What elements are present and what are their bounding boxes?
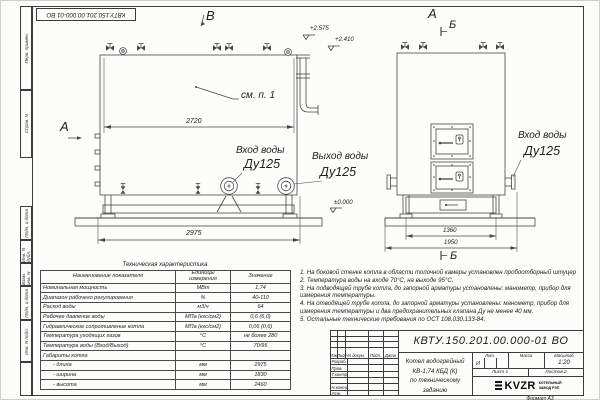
table-row: Диапазон рабочего регулирования%40-110 (41, 293, 291, 303)
col-izm: Изм. (330, 353, 337, 358)
table-row: - длинамм2975 (41, 361, 291, 371)
dim-2720-label: 2720 (186, 118, 202, 125)
product-name-line3: по техническому заданию (398, 376, 472, 395)
table-row: Рабочее давление водыМПа (кгс/см2)0,6 (6… (41, 312, 291, 322)
table-row: Температура уходящих газов°Сне более 280 (41, 331, 291, 341)
drawing-sheet: КВТУ.150.201.00.000-01 ВО Перв. примен. … (0, 0, 600, 400)
product-name: Котел водогрейный КВ-1,74 КБД (К) по тех… (398, 357, 472, 395)
margin-cell-perv-primen: Перв. примен. (20, 6, 32, 90)
logo-subtitle: КОТЕЛЬНЫЙ ЗАВОД РЭП (539, 381, 562, 390)
format-label: Формат А3 (500, 396, 580, 400)
mass-label: Масса (508, 353, 544, 358)
logo-text: KVZR (505, 380, 536, 392)
inlet-water-label: Вход воды (236, 146, 285, 156)
front-inlet-water-label: Вход воды (518, 131, 567, 141)
table-row: Габариты котла (41, 351, 291, 361)
scale-value: 1:20 (544, 360, 584, 366)
lit-label: Лит. (472, 353, 508, 358)
table-row: - ширинамм1830 (41, 370, 291, 380)
outlet-water-label: Выход воды (312, 152, 368, 162)
outlet-water-dn: Ду125 (320, 166, 356, 179)
margin-cell-inv-dubl: Инв. N дубл. (20, 240, 32, 263)
note-4: 4. На отводящей трубе котла, до запорной… (300, 300, 584, 315)
tech-table-title: Техническая характеристика (40, 262, 290, 268)
col-podp: Подп. (368, 353, 383, 358)
tech-table: Наименование показателя Единицы измерени… (40, 270, 291, 390)
col-list: Лист (337, 353, 345, 358)
inlet-water-dn: Ду125 (244, 158, 280, 171)
note-ref-label: см. п. 1 (241, 91, 275, 101)
row-utv: Утв. (332, 391, 342, 396)
col-ndoc: N докум. (345, 353, 368, 358)
note-3: 3. На подводящей трубе котла, до запорно… (300, 285, 584, 300)
margin-cell-sprav-n: Справ. N (20, 90, 32, 158)
logo-bars-icon (495, 381, 502, 390)
top-stamp-number: КВТУ.150.201.00.000-01 ВО (47, 11, 126, 18)
margin-cell-inv-podl: Инв. N подл. (20, 320, 32, 362)
elevation-2575: +2.575 (310, 26, 329, 32)
note-5: 5. Остальные технические требования по О… (300, 316, 584, 323)
front-inlet-water-dn: Ду125 (524, 145, 560, 158)
view-label-a-front: А (428, 7, 437, 20)
dim-1950-label: 1950 (444, 240, 458, 246)
margin-cell-vzam-inv: Взам. инв. N (20, 263, 32, 286)
elevation-zero: ±0.000 (334, 200, 353, 206)
company-logo: KVZR КОТЕЛЬНЫЙ ЗАВОД РЭП (472, 376, 584, 395)
table-row: Расход водым3/ч64 (41, 302, 291, 312)
sheet-number: Лист 1 (472, 370, 528, 375)
table-row: Температура воды (Вход/Выход)°С70/95 (41, 341, 291, 351)
table-row: Номинальная мощностьМВт1,74 (41, 283, 291, 293)
dim-2975-label: 2975 (186, 230, 202, 237)
note-2: 2. Температура воды на входе 70°С, на вы… (300, 277, 584, 284)
lit-value: И (472, 361, 484, 367)
row-prov: Пров. (332, 366, 343, 371)
tech-table-header: Наименование показателя Единицы измерени… (41, 271, 291, 284)
sheets-total: Листов 2 (528, 370, 584, 375)
row-razrab: Разраб. (332, 359, 347, 364)
section-label-b-top: Б (449, 20, 456, 31)
dim-1360-label: 1360 (443, 228, 457, 234)
section-label-b-bottom: Б (450, 251, 457, 262)
note-1: 1. На боковой стенке котла в области топ… (300, 269, 584, 276)
scale-label: Масштаб (544, 353, 584, 358)
margin-cell-podp-data-1: Подп. и дата (20, 206, 32, 240)
top-stamp: КВТУ.150.201.00.000-01 ВО (36, 8, 136, 21)
table-row: Гидравлическое сопротивление котлаМПа (к… (41, 322, 291, 332)
col-data: Дата (383, 353, 398, 358)
technical-notes: 1. На боковой стенке котла в области топ… (300, 269, 584, 323)
view-label-v: В (206, 9, 215, 22)
elevation-2410: +2.410 (335, 37, 354, 43)
view-label-a-side: А (60, 120, 69, 133)
margin-cell-empty (20, 362, 32, 396)
product-name-line1: Котел водогрейный (398, 357, 472, 367)
margin-cell-podp-data-2: Подп. и дата (20, 286, 32, 320)
row-nkontr: Н.контр. (332, 385, 350, 390)
row-tkontr: Т.контр. (332, 372, 349, 377)
table-row: - высотамм2460 (41, 380, 291, 390)
product-name-line2: КВ-1,74 КБД (К) (398, 367, 472, 377)
doc-number: КВТУ.150.201.00.000-01 ВО (398, 335, 584, 347)
